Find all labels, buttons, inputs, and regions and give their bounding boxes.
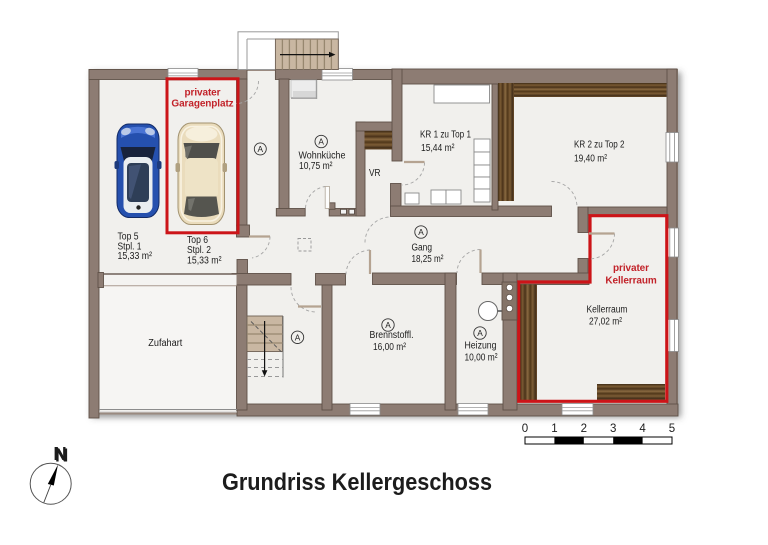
svg-text:10,00 m²: 10,00 m² <box>465 353 499 364</box>
svg-text:1: 1 <box>551 423 557 435</box>
svg-text:N: N <box>53 443 66 464</box>
svg-text:Gang: Gang <box>412 243 433 254</box>
svg-text:19,40 m²: 19,40 m² <box>574 154 608 165</box>
svg-text:KR 1 zu Top 1: KR 1 zu Top 1 <box>420 130 471 141</box>
svg-text:15,33 m²: 15,33 m² <box>118 251 153 262</box>
svg-text:privater: privater <box>185 88 221 99</box>
svg-text:3: 3 <box>610 423 616 435</box>
svg-text:Zufahart: Zufahart <box>148 338 182 349</box>
svg-text:18,25 m²: 18,25 m² <box>412 254 445 265</box>
svg-text:15,33 m²: 15,33 m² <box>187 256 222 267</box>
svg-text:2: 2 <box>581 423 587 435</box>
svg-text:A: A <box>418 227 424 237</box>
svg-text:Brennstoffl.: Brennstoffl. <box>370 330 414 341</box>
svg-text:Kellerraum: Kellerraum <box>587 305 628 316</box>
svg-text:10,75 m²: 10,75 m² <box>299 161 333 172</box>
svg-text:16,00 m²: 16,00 m² <box>373 342 407 353</box>
svg-text:A: A <box>258 144 264 154</box>
svg-text:27,02 m²: 27,02 m² <box>589 317 623 328</box>
svg-text:15,44 m²: 15,44 m² <box>421 143 455 154</box>
svg-text:Kellerraum: Kellerraum <box>605 276 656 287</box>
svg-text:A: A <box>295 332 301 342</box>
svg-text:Grundriss Kellergeschoss: Grundriss Kellergeschoss <box>222 469 492 496</box>
svg-text:5: 5 <box>669 423 675 435</box>
svg-text:Garagenplatz: Garagenplatz <box>171 99 233 110</box>
svg-text:A: A <box>318 137 324 147</box>
svg-text:A: A <box>477 328 483 338</box>
svg-text:4: 4 <box>639 423 646 435</box>
svg-text:Wohnküche: Wohnküche <box>299 151 346 162</box>
svg-text:VR: VR <box>369 168 381 179</box>
svg-text:A: A <box>385 320 391 330</box>
svg-text:Stpl. 2: Stpl. 2 <box>187 245 211 256</box>
svg-text:privater: privater <box>613 263 649 274</box>
svg-text:KR 2 zu Top 2: KR 2 zu Top 2 <box>574 140 625 151</box>
svg-text:Heizung: Heizung <box>465 341 497 352</box>
svg-text:0: 0 <box>522 423 528 435</box>
